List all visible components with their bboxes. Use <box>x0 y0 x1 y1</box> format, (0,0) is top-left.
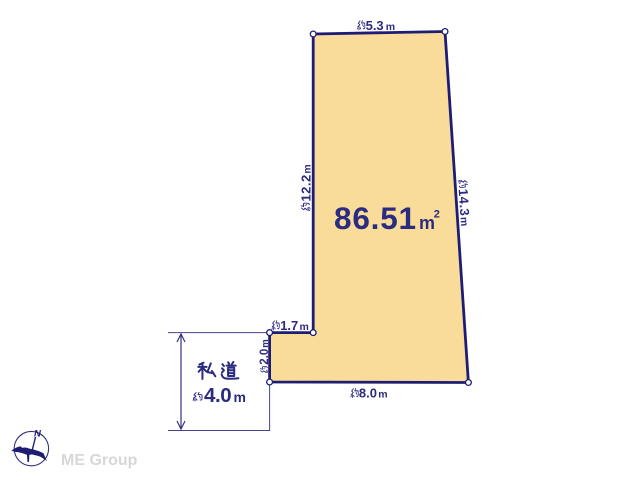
svg-text:1.7: 1.7 <box>280 318 298 333</box>
svg-text:m: m <box>378 389 387 401</box>
svg-text:2: 2 <box>434 209 440 221</box>
svg-text:m: m <box>300 321 309 333</box>
svg-text:m: m <box>458 217 471 227</box>
svg-text:86.51: 86.51 <box>334 200 417 236</box>
svg-text:m: m <box>386 21 395 33</box>
svg-text:m: m <box>419 213 435 233</box>
svg-text:12.2: 12.2 <box>298 174 313 201</box>
svg-text:14.3: 14.3 <box>456 188 473 216</box>
svg-text:m: m <box>301 164 313 173</box>
svg-text:4.0: 4.0 <box>204 384 231 407</box>
svg-text:m: m <box>260 339 271 347</box>
svg-text:m: m <box>234 389 246 405</box>
svg-text:8.0: 8.0 <box>359 386 377 401</box>
svg-text:5.3: 5.3 <box>366 18 384 33</box>
svg-text:ME Group: ME Group <box>61 452 138 469</box>
svg-text:2.0: 2.0 <box>259 349 271 365</box>
